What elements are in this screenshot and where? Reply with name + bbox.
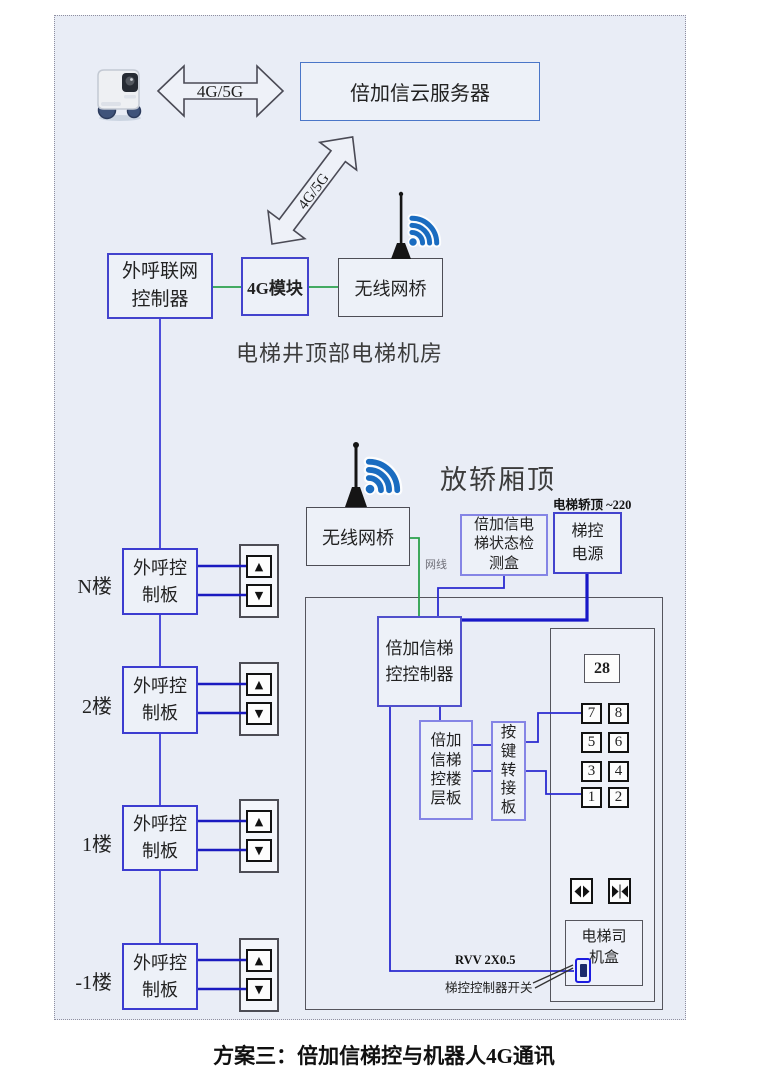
outcall-gateway-label: 外呼联网控制器 — [121, 258, 199, 313]
floor-label-minus1: -1楼 — [50, 966, 112, 995]
controller-switch-icon — [575, 958, 591, 983]
wireless-bridge-car-label: 无线网桥 — [322, 524, 394, 550]
outcall-gateway-box: 外呼联网控制器 — [107, 253, 213, 319]
up-button-n: ▲ — [246, 555, 272, 578]
down-button-n: ▼ — [246, 584, 272, 607]
up-arrow-icon: ▲ — [255, 955, 263, 966]
down-button-1: ▼ — [246, 839, 272, 862]
key-adapter-label: 按键转接板 — [501, 724, 517, 819]
floor-label-2: 2楼 — [50, 690, 112, 719]
module-4g-box: 4G模块 — [241, 257, 309, 316]
status-detect-box: 倍加信电梯状态检测盒 — [460, 514, 548, 576]
key-adapter-box: 按键转接板 — [491, 721, 526, 821]
floor-board-label: 倍加信梯控楼层板 — [429, 731, 463, 809]
outcall-board-minus1: 外呼控制板 — [122, 943, 198, 1010]
door-close-button — [608, 878, 631, 904]
up-button-2: ▲ — [246, 673, 272, 696]
power-note-label: 电梯轿顶 ~220 — [553, 494, 631, 513]
robot-icon — [93, 64, 147, 122]
outcall-board-1: 外呼控制板 — [122, 805, 198, 871]
down-arrow-icon: ▼ — [255, 845, 263, 856]
elevator-controller-box: 倍加信梯控控制器 — [377, 616, 462, 707]
car-top-caption: 放轿厢顶 — [440, 458, 556, 497]
elevator-power-label: 梯控电源 — [569, 520, 606, 566]
up-arrow-icon: ▲ — [255, 561, 263, 572]
outcall-board-2: 外呼控制板 — [122, 666, 198, 734]
down-button-2: ▼ — [246, 702, 272, 725]
door-open-button — [570, 878, 593, 904]
module-4g-label: 4G模块 — [247, 274, 303, 299]
cop-key-6: 6 — [608, 732, 629, 753]
elevator-controller-label: 倍加信梯控控制器 — [385, 636, 454, 687]
elevator-power-box: 梯控电源 — [553, 512, 622, 574]
scheme-diagram-page: 倍加信云服务器 外呼联网控制器 4G模块 无线网桥 电梯井顶部电梯机房 无线网桥… — [0, 0, 768, 1090]
cop-key-4: 4 — [608, 761, 629, 782]
cop-key-3: 3 — [581, 761, 602, 782]
floor-label-n: N楼 — [50, 570, 112, 599]
machine-room-caption: 电梯井顶部电梯机房 — [236, 336, 443, 368]
cloud-server-box: 倍加信云服务器 — [300, 62, 540, 121]
floor-display-value: 28 — [594, 660, 610, 678]
controller-switch-label: 梯控控制器开关 — [445, 977, 533, 996]
floor-display: 28 — [584, 654, 620, 683]
down-button-minus1: ▼ — [246, 978, 272, 1001]
wireless-bridge-car-box: 无线网桥 — [306, 507, 410, 566]
up-arrow-icon: ▲ — [255, 679, 263, 690]
up-button-minus1: ▲ — [246, 949, 272, 972]
wireless-bridge-top-label: 无线网桥 — [355, 275, 427, 301]
scheme-caption: 方案三：倍加信梯控与机器人4G通讯 — [0, 1040, 768, 1070]
floor-board-box: 倍加信梯控楼层板 — [419, 720, 473, 820]
down-arrow-icon: ▼ — [255, 708, 263, 719]
rvv-cable-label: RVV 2X0.5 — [455, 953, 515, 968]
cop-key-7: 7 — [581, 703, 602, 724]
cop-key-8: 8 — [608, 703, 629, 724]
up-button-1: ▲ — [246, 810, 272, 833]
cop-key-1: 1 — [581, 787, 602, 808]
door-close-icon — [611, 881, 629, 902]
floor-label-1: 1楼 — [50, 828, 112, 857]
cloud-server-label: 倍加信云服务器 — [350, 77, 490, 106]
ethernet-cable-label: 网线 — [425, 556, 447, 572]
outcall-board-n: 外呼控制板 — [122, 548, 198, 615]
cop-key-2: 2 — [608, 787, 629, 808]
cop-key-5: 5 — [581, 732, 602, 753]
down-arrow-icon: ▼ — [255, 984, 263, 995]
up-arrow-icon: ▲ — [255, 816, 263, 827]
status-detect-label: 倍加信电梯状态检测盒 — [471, 516, 537, 573]
down-arrow-icon: ▼ — [255, 590, 263, 601]
wireless-bridge-top-box: 无线网桥 — [338, 258, 443, 317]
door-open-icon — [573, 881, 591, 902]
